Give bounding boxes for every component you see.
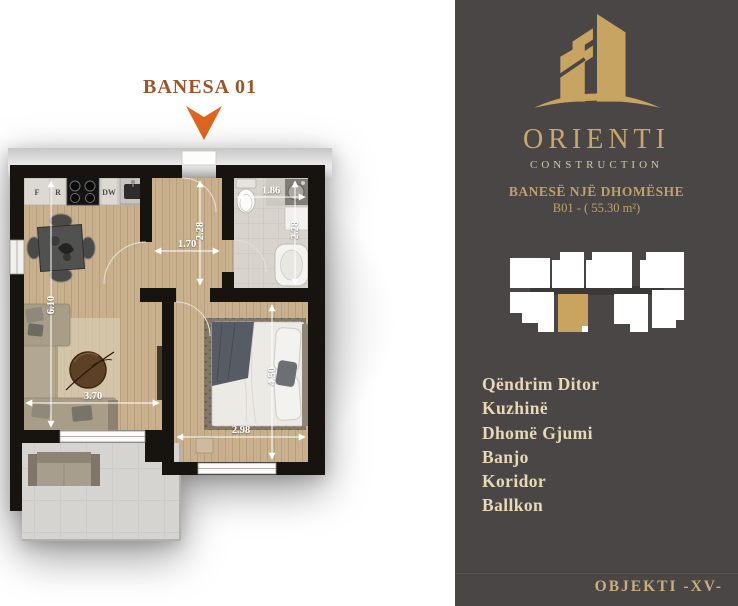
dishwasher-label: DW (102, 188, 116, 197)
right-unit-label: R (55, 188, 61, 197)
room-list-item: Banjo (482, 445, 599, 469)
tv-unit (157, 346, 162, 400)
orienti-building-logo-icon (522, 12, 672, 124)
plan-title: BANESA 01 (90, 76, 310, 99)
dim-corridor-width: 1.70 (178, 239, 196, 250)
brand-subtitle: CONSTRUCTION (455, 159, 738, 171)
down-arrow-icon (186, 106, 222, 140)
building-floor-diagram (502, 248, 692, 340)
dim-corridor-height: 2.28 (195, 222, 206, 240)
object-label: OBJEKTI -XV- (595, 578, 723, 596)
dim-bedroom-height: 4.50 (267, 367, 278, 385)
room-list-item: Qëndrim Ditor (482, 372, 599, 396)
toilet (237, 189, 255, 213)
brand-name: ORIENTI (455, 124, 738, 156)
dim-bedroom-width: 2.98 (232, 425, 250, 436)
nightstand (196, 438, 213, 453)
dim-kitchen-living-height: 6.10 (46, 296, 57, 314)
dim-bathroom-width: 1.86 (262, 186, 280, 197)
room-list-item: Ballkon (482, 493, 599, 517)
dim-living-width: 3.70 (84, 391, 102, 402)
fridge-label: F (35, 188, 40, 197)
room-list-item: Kuzhinë (482, 396, 599, 420)
entrance-door (182, 151, 216, 165)
page: BANESA 01 (0, 0, 738, 606)
sidebar: ORIENTI CONSTRUCTION BANESË NJË DHOMËSHE… (455, 0, 738, 606)
apartment-unit-area: B01 - ( 55.30 m²) (455, 201, 738, 216)
room-list-item: Koridor (482, 469, 599, 493)
room-list-item: Dhomë Gjumi (482, 421, 599, 445)
dim-bathroom-height: 2.28 (290, 221, 301, 239)
balcony-sofa (28, 452, 100, 486)
bed (204, 318, 308, 430)
floor-plan: F R DW (8, 148, 332, 548)
footer-divider (455, 573, 738, 574)
room-list: Qëndrim Ditor Kuzhinë Dhomë Gjumi Banjo … (482, 372, 599, 518)
apartment-type: BANESË NJË DHOMËSHE (455, 184, 738, 200)
